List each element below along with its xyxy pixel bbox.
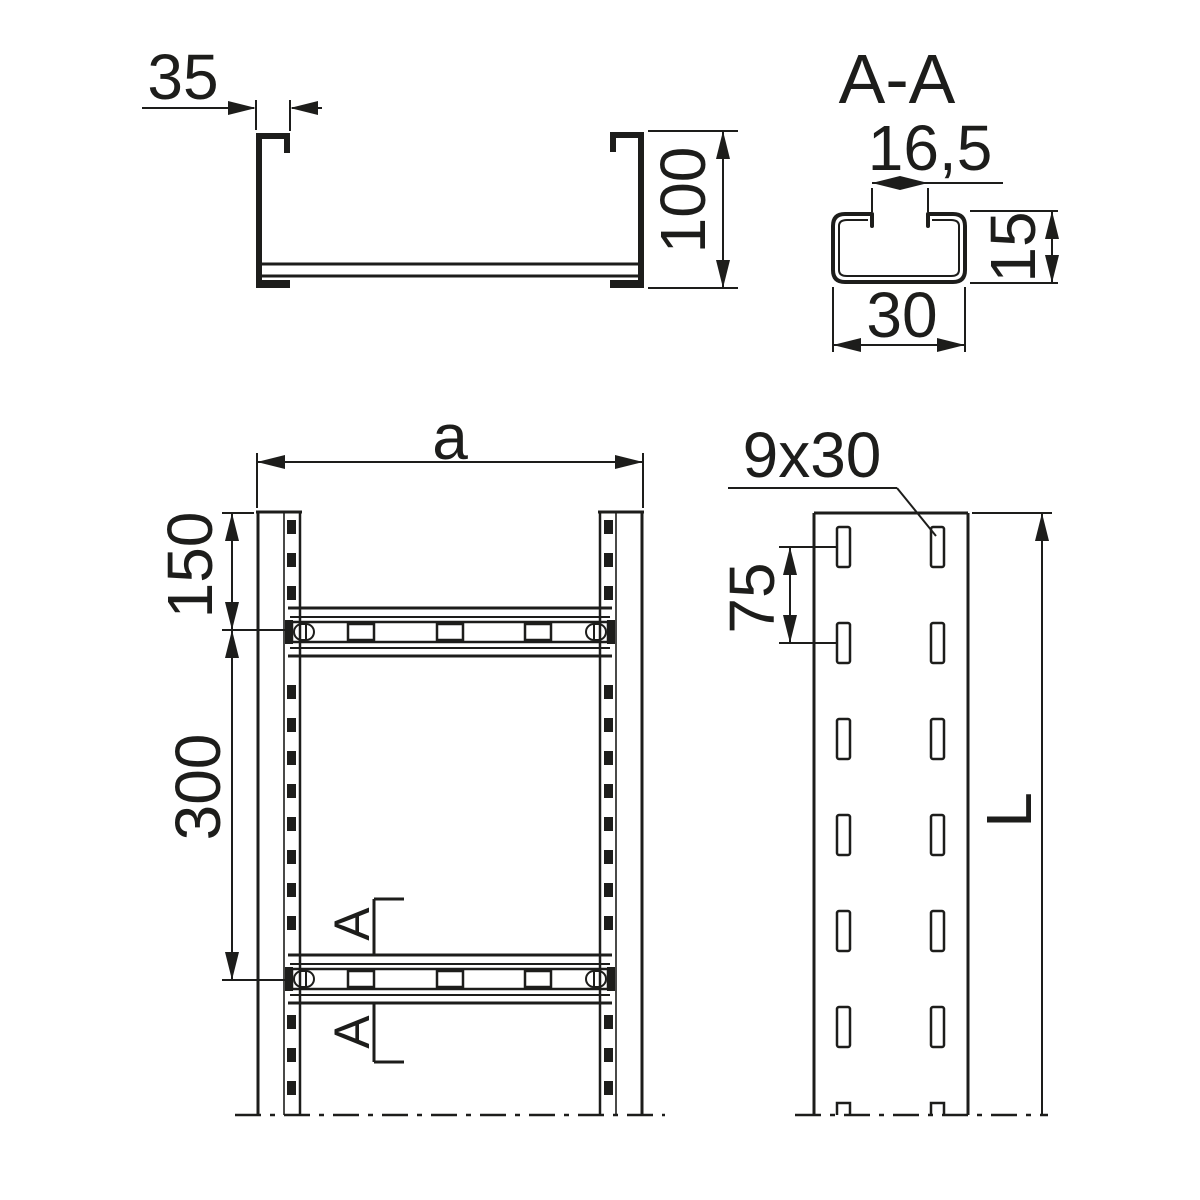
rung-slot <box>437 624 463 640</box>
rail-slot-dash <box>604 685 613 699</box>
rung-slot <box>525 971 551 987</box>
right-lip-stub <box>610 138 616 152</box>
view-side: 9x30 75 L <box>716 419 1052 1115</box>
rung-end-slot <box>586 971 606 987</box>
rail-slot-dashes <box>287 520 613 1095</box>
rung-end <box>607 967 615 991</box>
rung-end <box>285 620 293 644</box>
side-slot <box>837 527 850 567</box>
rail-slot-dash <box>287 784 296 798</box>
rail-slot-dash <box>287 751 296 765</box>
rail-slot-dash <box>287 850 296 864</box>
rail-slot-dash <box>604 883 613 897</box>
side-slot <box>931 1007 944 1047</box>
side-slot <box>931 623 944 663</box>
side-slot <box>837 911 850 951</box>
rail-slot-dash <box>287 553 296 567</box>
side-slot <box>931 719 944 759</box>
rail-slot-dash <box>604 718 613 732</box>
side-slot <box>837 719 850 759</box>
rung-slot <box>525 624 551 640</box>
rung <box>285 955 615 1003</box>
slot-size-label: 9x30 <box>743 419 882 491</box>
left-lip-stub <box>284 139 290 153</box>
arrowhead <box>257 455 285 469</box>
side-rail-slot-partial <box>837 1103 850 1115</box>
rung-profile-outer <box>833 214 965 282</box>
dim-label-slot-spacing: 75 <box>716 562 788 633</box>
rail-slot-dash <box>604 784 613 798</box>
rail-slot-dash <box>287 1015 296 1029</box>
rung-profile-inner <box>839 220 959 276</box>
rail-slot-dash <box>604 1048 613 1062</box>
rail-slot-dash <box>287 1081 296 1095</box>
rail-slot-dash <box>287 1048 296 1062</box>
rung-end-slot <box>586 624 606 640</box>
arrowhead <box>937 338 965 352</box>
arrowhead <box>225 602 239 630</box>
arrowhead <box>290 101 318 115</box>
arrowhead <box>615 455 643 469</box>
rung-slot <box>348 971 374 987</box>
rail-slot-dash <box>604 916 613 930</box>
side-slot <box>931 911 944 951</box>
rail-slot-dash <box>604 751 613 765</box>
rail-slot-dash <box>287 883 296 897</box>
view-section-aa: A-A 16,5 15 30 <box>833 40 1059 352</box>
arrowhead <box>1035 513 1049 541</box>
arrowhead <box>228 101 256 115</box>
cable-ladder-drawing: 35 100 A-A 16,5 15 <box>0 0 1200 1200</box>
rung-slot <box>437 971 463 987</box>
rail-slot-dash <box>287 520 296 534</box>
rail-slot-dash <box>287 916 296 930</box>
rung-end <box>607 620 615 644</box>
section-mark-upper: A <box>324 907 380 941</box>
dim-label-profile-height: 15 <box>977 211 1049 282</box>
section-title: A-A <box>839 40 956 118</box>
side-rail-slots <box>837 527 944 1047</box>
rail-slot-dash <box>604 1015 613 1029</box>
rung-slot <box>348 624 374 640</box>
view-front: a 150 300 A A <box>154 401 665 1115</box>
rail-slot-dash <box>287 817 296 831</box>
rail-slot-dash <box>287 718 296 732</box>
rail-slot-dash <box>604 850 613 864</box>
rail-slot-dash <box>287 685 296 699</box>
arrowhead <box>225 952 239 980</box>
left-foot <box>256 280 290 288</box>
rung-end-slot <box>294 971 314 987</box>
side-slot <box>837 1007 850 1047</box>
rung <box>285 608 615 656</box>
rail-slot-dash <box>604 586 613 600</box>
rail-slot-dash <box>604 817 613 831</box>
arrowhead <box>225 630 239 658</box>
arrowhead <box>833 338 861 352</box>
dim-label-lip-width: 35 <box>147 41 218 113</box>
left-wall <box>256 133 262 288</box>
rung-end-slot <box>294 624 314 640</box>
rail-slot-dash <box>287 586 296 600</box>
right-foot <box>610 280 644 288</box>
side-slot <box>931 815 944 855</box>
arrowhead <box>716 260 730 288</box>
view-cross-section: 35 100 <box>142 41 738 288</box>
side-slot <box>837 815 850 855</box>
rail-slot-dash <box>604 520 613 534</box>
dim-label-end-to-rung: 150 <box>154 512 226 619</box>
dim-label-opening: 16,5 <box>868 112 993 184</box>
rail-slot-dash <box>604 1081 613 1095</box>
dim-label-rung-spacing: 300 <box>162 734 234 841</box>
arrowhead <box>225 513 239 541</box>
rail-slot-dash <box>604 553 613 567</box>
dim-label-length: L <box>973 792 1045 828</box>
side-slot <box>837 623 850 663</box>
dim-label-height: 100 <box>647 147 719 254</box>
side-rail-slot-partial <box>931 1103 944 1115</box>
right-wall <box>638 132 644 288</box>
technical-drawing-page: 35 100 A-A 16,5 15 <box>0 0 1200 1200</box>
section-mark-lower: A <box>324 1015 380 1049</box>
dim-label-profile-width: 30 <box>866 279 937 351</box>
